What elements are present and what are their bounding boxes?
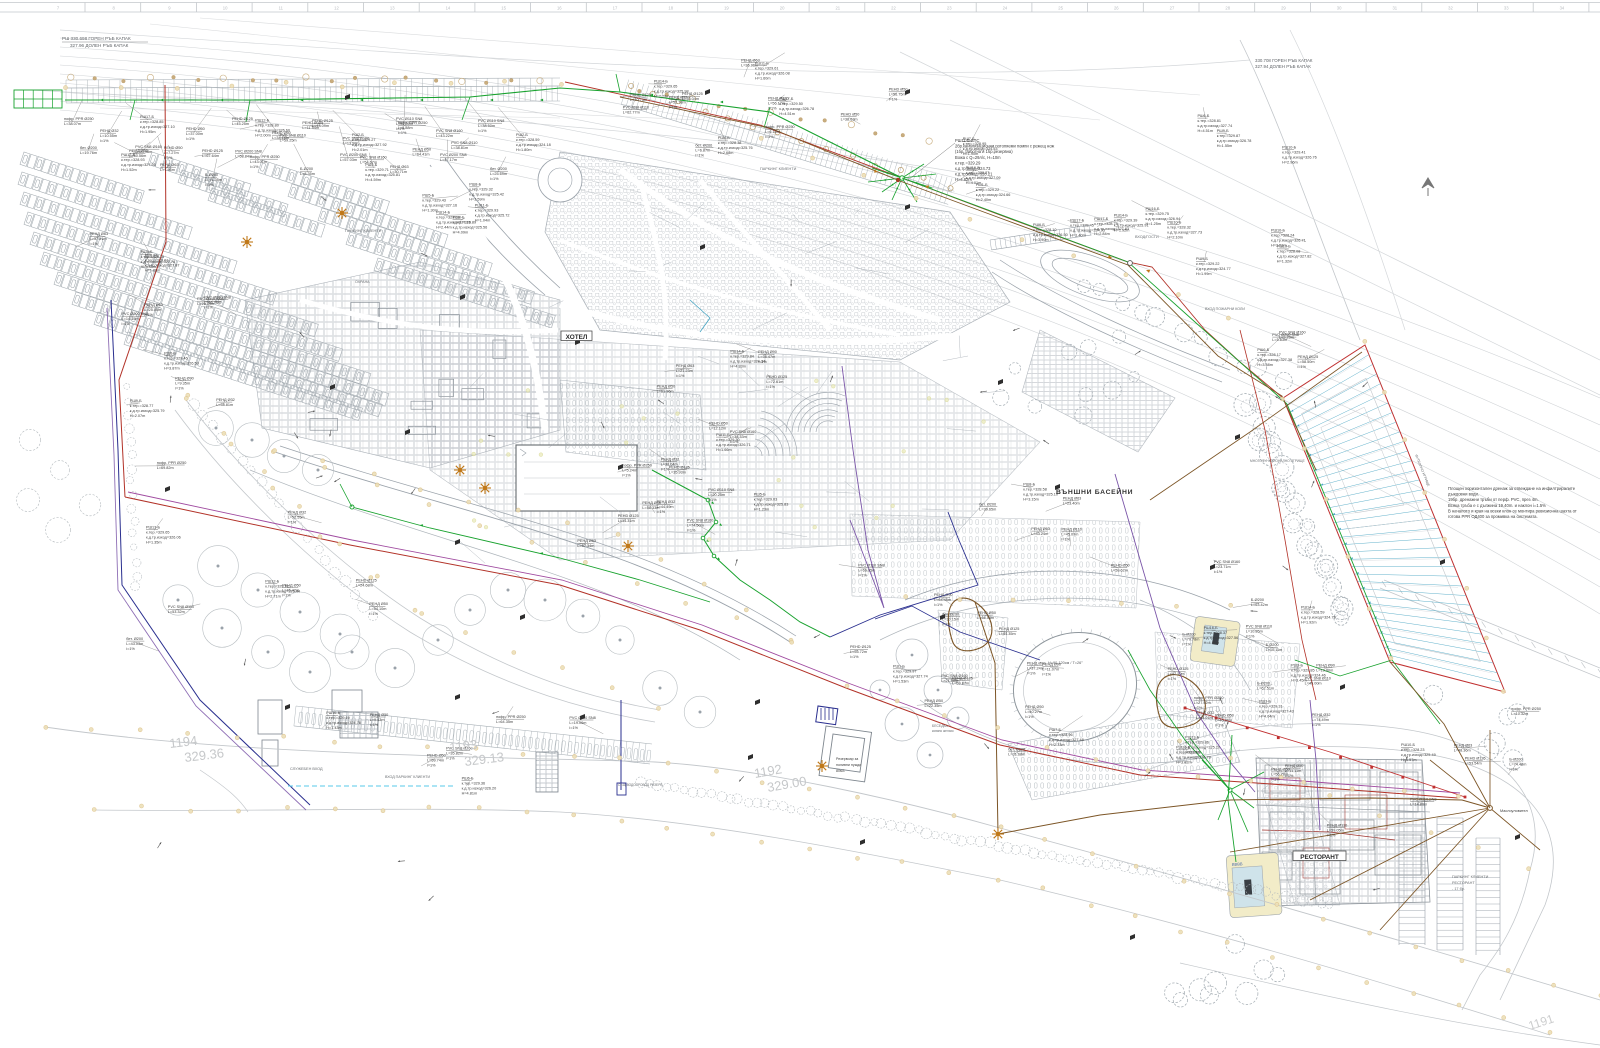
svg-text:к.д.тр.изход=325.81: к.д.тр.изход=325.81 — [365, 173, 400, 177]
svg-text:к.д.тр.изход=324.78: к.д.тр.изход=324.78 — [326, 721, 361, 725]
svg-text:Н=4.33m: Н=4.33m — [730, 365, 746, 369]
svg-text:к.тер.=328.08: к.тер.=328.08 — [1277, 250, 1301, 254]
svg-text:к.тер.=328.89: к.тер.=328.89 — [453, 220, 477, 224]
svg-text:PVC Ø110 SN8: PVC Ø110 SN8 — [478, 119, 504, 123]
svg-text:i=1%: i=1% — [676, 374, 685, 378]
svg-text:L=21.23m: L=21.23m — [676, 369, 693, 373]
svg-text:Н=2.29m: Н=2.29m — [654, 94, 670, 98]
svg-text:L=38.63m: L=38.63m — [841, 118, 858, 122]
svg-text:ковано желязо: ковано желязо — [932, 729, 954, 733]
svg-text:Площен хоризонтален дренаж за: Площен хоризонтален дренаж за отвеждане … — [1448, 486, 1576, 491]
svg-text:L=63.42m: L=63.42m — [1251, 603, 1268, 607]
svg-text:L=19.80m: L=19.80m — [1316, 668, 1333, 672]
svg-text:РШ12-Б: РШ12-Б — [121, 153, 136, 157]
svg-text:к.тер.=329.65: к.тер.=329.65 — [146, 531, 170, 535]
svg-text:РШ7-Б: РШ7-Б — [1049, 728, 1061, 732]
svg-text:к.д.тр.изход=325.79: к.д.тр.изход=325.79 — [130, 409, 165, 413]
svg-text:РЕНД Ø63: РЕНД Ø63 — [577, 539, 596, 543]
svg-text:L=74.49m: L=74.49m — [1312, 718, 1329, 722]
svg-text:РЕНД Ø110: РЕНД Ø110 — [1327, 823, 1347, 827]
svg-text:327.96 ДОЛЕН РЪБ КАПАК: 327.96 ДОЛЕН РЪБ КАПАК — [70, 43, 129, 48]
svg-text:PVC Ø200 SN8: PVC Ø200 SN8 — [235, 149, 262, 153]
svg-text:РШ 330.698 ГОРЕН РЪБ КАПАК: РШ 330.698 ГОРЕН РЪБ КАПАК — [62, 36, 131, 41]
svg-text:L=10.32m: L=10.32m — [1511, 712, 1528, 716]
svg-text:к.тер.=329.31: к.тер.=329.31 — [1259, 704, 1283, 708]
svg-text:Н=3.26m: Н=3.26m — [1185, 751, 1201, 755]
svg-text:PEHD Ø125: PEHD Ø125 — [630, 93, 651, 97]
svg-text:РШ6-Б: РШ6-Б — [1033, 223, 1045, 227]
svg-text:к.д.тр.изход=326.71: к.д.тр.изход=326.71 — [1271, 238, 1306, 242]
svg-text:РЕСТОРАНТ: РЕСТОРАНТ — [1300, 854, 1339, 861]
svg-text:L=19.06m: L=19.06m — [569, 721, 586, 725]
svg-text:РЕНД Ø63: РЕНД Ø63 — [90, 232, 109, 236]
svg-text:Н=1.90m: Н=1.90m — [963, 152, 979, 156]
svg-text:L=58.84m: L=58.84m — [235, 154, 252, 158]
svg-text:PEHD Ø125: PEHD Ø125 — [202, 149, 223, 153]
svg-text:к.тер.=329.22: к.тер.=329.22 — [1196, 262, 1220, 266]
svg-text:i=1%: i=1% — [427, 764, 436, 768]
svg-text:к.тер.=329.71: к.тер.=329.71 — [365, 168, 389, 172]
svg-text:к.д.тр.изход=327.56: к.д.тр.изход=327.56 — [1204, 636, 1239, 640]
svg-text:Н=2.68m: Н=2.68m — [718, 151, 734, 155]
svg-text:L=43.22m: L=43.22m — [436, 134, 453, 138]
svg-text:Н=1.53m: Н=1.53m — [893, 680, 909, 684]
svg-text:бет. Ø200: бет. Ø200 — [979, 502, 996, 506]
svg-text:32: 32 — [1448, 6, 1453, 11]
svg-text:i=1%: i=1% — [934, 603, 943, 607]
svg-text:СЛУЖЕБЕН ВХОД: СЛУЖЕБЕН ВХОД — [290, 767, 323, 771]
svg-text:РШ5-Б: РШ5-Б — [422, 194, 434, 198]
svg-text:L=70.73m: L=70.73m — [630, 98, 647, 102]
svg-text:7: 7 — [57, 6, 60, 11]
svg-text:к.тер.=328.59: к.тер.=328.59 — [516, 138, 540, 142]
svg-text:L=14.31m: L=14.31m — [618, 519, 635, 523]
svg-text:L=53.54m: L=53.54m — [1465, 762, 1482, 766]
svg-text:РШ12-Б: РШ12-Б — [255, 119, 270, 123]
svg-text:к.тер.=329.75: к.тер.=329.75 — [1146, 212, 1170, 216]
svg-text:к.тер.=328.59: к.тер.=328.59 — [1301, 611, 1325, 615]
svg-text:к.тер.=329.46: к.тер.=329.46 — [164, 357, 188, 361]
svg-text:РЕНД Ø63: РЕНД Ø63 — [1031, 527, 1050, 531]
svg-text:i=1%: i=1% — [569, 726, 578, 730]
svg-text:L=10.55m: L=10.55m — [100, 134, 117, 138]
svg-text:РШ9-Б: РШ9-Б — [130, 399, 142, 403]
svg-text:Н=3.58m: Н=3.58m — [1257, 363, 1273, 367]
svg-text:i=1%: i=1% — [1285, 774, 1294, 778]
svg-text:Б-Ø200: Б-Ø200 — [205, 173, 218, 177]
svg-text:Н=2.10m: Н=2.10m — [1167, 236, 1183, 240]
svg-text:i=1%: i=1% — [942, 623, 951, 627]
svg-text:к.тер.=329.43: к.тер.=329.43 — [422, 199, 446, 203]
svg-text:к.д.тр.изход=325.91: к.д.тр.изход=325.91 — [1114, 224, 1149, 228]
svg-text:17: 17 — [613, 6, 618, 11]
svg-text:i=1%: i=1% — [1168, 677, 1177, 681]
svg-text:Н=1.80m: Н=1.80m — [516, 148, 532, 152]
svg-text:к.тер.=329.85: к.тер.=329.85 — [1291, 669, 1315, 673]
svg-text:РШ10-Б: РШ10-Б — [966, 166, 981, 170]
svg-text:L=45.42m: L=45.42m — [282, 588, 299, 592]
svg-text:Н=1.43m: Н=1.43m — [326, 726, 342, 730]
svg-text:Всяка тръба е с дължина 19.40m: Всяка тръба е с дължина 19.40m. и наклон… — [1448, 503, 1546, 508]
svg-text:L=58.50m: L=58.50m — [1298, 360, 1315, 364]
svg-text:i=1%: i=1% — [288, 521, 297, 525]
svg-text:пофр. PPR Ø250: пофр. PPR Ø250 — [1511, 707, 1541, 711]
svg-text:РЕНД Ø125: РЕНД Ø125 — [999, 627, 1020, 631]
svg-text:L=72.61m: L=72.61m — [766, 380, 783, 384]
svg-text:РШ10-Б: РШ10-Б — [1277, 245, 1292, 249]
svg-text:к.д.тр.изход=327.10: к.д.тр.изход=327.10 — [140, 125, 175, 129]
svg-text:L=11.54m: L=11.54m — [302, 126, 319, 130]
svg-text:к.тер.=328.80: к.тер.=328.80 — [255, 124, 279, 128]
svg-text:L=55.72m: L=55.72m — [850, 650, 867, 654]
svg-text:к.д.тр.изход=326.60: к.д.тр.изход=326.60 — [255, 129, 290, 133]
svg-text:РЕНД Ø32: РЕНД Ø32 — [1312, 713, 1331, 717]
svg-text:PVC Ø110 SN8: PVC Ø110 SN8 — [569, 716, 595, 720]
svg-text:L=45.25m: L=45.25m — [232, 122, 249, 126]
svg-text:бет. Ø200: бет. Ø200 — [126, 637, 143, 641]
svg-text:ВЪНШНИ БАСЕЙНИ: ВЪНШНИ БАСЕЙНИ — [1056, 487, 1133, 496]
svg-text:Н=2.71m: Н=2.71m — [265, 594, 281, 598]
svg-text:PEHD Ø50: PEHD Ø50 — [841, 113, 860, 117]
svg-text:к.тер.=329.86: к.тер.=329.86 — [1185, 741, 1209, 745]
svg-text:РЕНД Ø90: РЕНД Ø90 — [934, 593, 953, 597]
svg-text:РЕНД Ø125: РЕНД Ø125 — [1298, 355, 1319, 359]
svg-text:L=59.25m: L=59.25m — [280, 139, 297, 143]
svg-text:L=37.00m: L=37.00m — [186, 132, 203, 136]
svg-text:L=62.77m: L=62.77m — [623, 110, 640, 114]
svg-text:к.д.тр.изход=327.82: к.д.тр.изход=327.82 — [1277, 255, 1312, 259]
svg-text:PVC SN8 Ø160: PVC SN8 Ø160 — [687, 518, 714, 522]
svg-text:L=59.87m: L=59.87m — [952, 681, 969, 685]
svg-text:i=1%: i=1% — [765, 135, 774, 139]
svg-text:L=64.35m: L=64.35m — [496, 720, 513, 724]
svg-text:к.тер.=328.77: к.тер.=328.77 — [130, 404, 154, 408]
svg-text:- 17 бр.: - 17 бр. — [1452, 887, 1465, 891]
svg-text:PEHD Ø50: PEHD Ø50 — [977, 611, 996, 615]
svg-text:i=1%: i=1% — [250, 165, 259, 169]
svg-text:18: 18 — [668, 6, 673, 11]
svg-text:пофр. PPR Ø250: пофр. PPR Ø250 — [398, 121, 428, 125]
svg-text:к.тер.=329.87: к.тер.=329.87 — [1217, 134, 1241, 138]
svg-text:L=74.48m: L=74.48m — [1509, 763, 1526, 767]
svg-text:L=44.49m: L=44.49m — [657, 505, 674, 509]
svg-text:к.д.тр.изход=327.74: к.д.тр.изход=327.74 — [1198, 124, 1233, 128]
svg-text:РЕНД Ø90: РЕНД Ø90 — [175, 376, 194, 380]
svg-text:PVC SN8 Ø110: PVC SN8 Ø110 — [1246, 625, 1272, 629]
svg-text:пофр. PPR Ø250: пофр. PPR Ø250 — [765, 125, 795, 129]
svg-text:РЕНД Ø50: РЕНД Ø50 — [413, 148, 432, 152]
svg-text:Н=2.96m: Н=2.96m — [1282, 160, 1298, 164]
svg-text:i=1%: i=1% — [657, 510, 666, 514]
svg-text:к.тер.=329.93: к.тер.=329.93 — [475, 208, 499, 212]
svg-text:к.д.тр.изход=326.78: к.д.тр.изход=326.78 — [1217, 139, 1252, 143]
svg-text:к.д.тр.изход=327.09: к.д.тр.изход=327.09 — [966, 176, 1001, 180]
svg-text:L=6.87m: L=6.87m — [695, 148, 710, 152]
svg-text:к.тер.=328.17: к.тер.=328.17 — [1257, 353, 1281, 357]
svg-text:к.тер.=329.61: к.тер.=329.61 — [755, 66, 779, 70]
svg-text:РЕНД Ø63: РЕНД Ø63 — [144, 303, 163, 307]
svg-text:i=1%: i=1% — [1327, 833, 1336, 837]
svg-text:PVC SN8 Ø110: PVC SN8 Ø110 — [280, 134, 306, 138]
svg-text:Б-Ø200: Б-Ø200 — [1182, 633, 1195, 637]
svg-text:к.тер.=329.03: к.тер.=329.03 — [754, 498, 778, 502]
svg-text:РШ10-Б: РШ10-Б — [1271, 228, 1286, 232]
svg-text:РЕНД Ø50: РЕНД Ø50 — [369, 602, 388, 606]
svg-text:РШ6-Б: РШ6-Б — [1198, 114, 1210, 118]
svg-text:i=1%: i=1% — [369, 612, 378, 616]
svg-text:Н=4.59m: Н=4.59m — [365, 178, 381, 182]
svg-text:РШ13-Б: РШ13-Б — [1185, 736, 1200, 740]
svg-text:к.д.тр.изход=325.83: к.д.тр.изход=325.83 — [754, 503, 789, 507]
svg-text:Н=4.04m: Н=4.04m — [1259, 714, 1275, 718]
svg-text:i=1%: i=1% — [205, 183, 214, 187]
svg-text:L=9.43m: L=9.43m — [370, 718, 385, 722]
svg-text:ПАРКИНГ КЛИЕНТИ: ПАРКИНГ КЛИЕНТИ — [345, 229, 382, 233]
svg-text:бет. Ø200: бет. Ø200 — [80, 146, 97, 150]
svg-text:бет. Ø200: бет. Ø200 — [1008, 748, 1025, 752]
svg-text:ПАРКИНГ КЛИЕНТИ: ПАРКИНГ КЛИЕНТИ — [1452, 875, 1489, 879]
svg-text:к.тер.=329.01: к.тер.=329.01 — [145, 259, 169, 263]
svg-text:Н=3.82m: Н=3.82m — [1176, 761, 1192, 765]
svg-text:к.д.тр.изход=325.42: к.д.тр.изход=325.42 — [469, 193, 504, 197]
svg-text:L=11.11m: L=11.11m — [1285, 769, 1301, 773]
svg-text:РШ10-Б: РШ10-Б — [1401, 743, 1416, 747]
svg-text:PVC SN8 Ø110: PVC SN8 Ø110 — [168, 605, 194, 609]
svg-text:Б-Ø200: Б-Ø200 — [300, 167, 313, 171]
svg-text:i=1%: i=1% — [687, 528, 696, 532]
svg-text:РШ9-Б: РШ9-Б — [1196, 257, 1208, 261]
svg-text:РЕСТОРАНТ: РЕСТОРАНТ — [1452, 881, 1475, 885]
svg-text:к.тер.=329.84: к.тер.=329.84 — [730, 355, 754, 359]
svg-text:РШ11-Б: РШ11-Б — [475, 203, 489, 207]
svg-text:20: 20 — [780, 6, 785, 11]
svg-text:1191: 1191 — [1527, 1011, 1556, 1032]
svg-text:26: 26 — [1114, 6, 1119, 11]
svg-text:PEHD Ø50: PEHD Ø50 — [186, 127, 205, 131]
svg-text:PEHD Ø50: PEHD Ø50 — [709, 422, 728, 426]
svg-text:PVC SN8 Ø160: PVC SN8 Ø160 — [360, 156, 387, 160]
svg-text:РШ7-Б: РШ7-Б — [963, 137, 975, 141]
svg-text:к.д.тр.изход=325.56: к.д.тр.изход=325.56 — [453, 225, 488, 229]
svg-text:L=8.35m: L=8.35m — [300, 172, 315, 176]
svg-text:L=7.27m: L=7.27m — [164, 151, 179, 155]
svg-text:к.тер.=328.95: к.тер.=328.95 — [963, 142, 987, 146]
svg-text:L=35.93m: L=35.93m — [669, 471, 686, 475]
svg-text:i=1%: i=1% — [204, 306, 213, 310]
svg-text:80м3: 80м3 — [836, 769, 844, 773]
svg-text:i=1%: i=1% — [186, 137, 195, 141]
svg-text:i=1%: i=1% — [446, 757, 455, 761]
svg-text:к.д.тр.изход=327.87: к.д.тр.изход=327.87 — [145, 264, 180, 268]
svg-text:24: 24 — [1003, 6, 1008, 11]
svg-text:к.д.тр.изход=325.10: к.д.тр.изход=325.10 — [1023, 493, 1058, 497]
svg-text:РШ16-Б: РШ16-Б — [1146, 207, 1161, 211]
svg-text:РШ14-Б: РШ14-Б — [1301, 606, 1316, 610]
svg-text:к.тер.=328.32: к.тер.=328.32 — [1167, 226, 1191, 230]
svg-text:РЕНД Ø90: РЕНД Ø90 — [1316, 663, 1335, 667]
svg-text:PEHD Ø50: PEHD Ø50 — [164, 146, 183, 150]
svg-text:PEHD Ø125: PEHD Ø125 — [1168, 667, 1189, 671]
svg-text:к.д.тр.изход=326.59: к.д.тр.изход=326.59 — [164, 362, 199, 366]
svg-text:РШ3-Б: РШ3-Б — [1291, 664, 1303, 668]
svg-text:15: 15 — [501, 6, 506, 11]
svg-text:PVC Ø110 SN8: PVC Ø110 SN8 — [708, 488, 734, 492]
svg-text:PVC Ø110 SN8: PVC Ø110 SN8 — [858, 564, 884, 568]
svg-text:к.тер.=328.27: к.тер.=328.27 — [966, 171, 990, 175]
svg-text:L=49.00m: L=49.00m — [1305, 682, 1322, 686]
svg-text:i=1%: i=1% — [1027, 671, 1036, 675]
svg-text:Н=4.51m: Н=4.51m — [1198, 129, 1214, 133]
svg-text:РШ1-Б: РШ1-Б — [893, 665, 905, 669]
svg-text:330.708 ГОРЕН РЪБ КАПАК: 330.708 ГОРЕН РЪБ КАПАК — [1255, 58, 1313, 63]
svg-text:L=59.74m: L=59.74m — [427, 759, 444, 763]
svg-text:L=58.62m: L=58.62m — [1111, 568, 1128, 572]
svg-text:РЕНД Ø50: РЕНД Ø50 — [282, 583, 301, 587]
svg-text:Н=1.60m: Н=1.60m — [755, 76, 771, 80]
svg-text:к.д.тр.изход=325.20: к.д.тр.изход=325.20 — [1185, 746, 1220, 750]
svg-text:i=1%: i=1% — [1298, 365, 1307, 369]
svg-text:L=13.98m: L=13.98m — [343, 142, 360, 146]
svg-text:i=1%: i=1% — [766, 385, 775, 389]
svg-text:30: 30 — [1337, 6, 1342, 11]
svg-text:РШ1-Б: РШ1-Б — [976, 183, 988, 187]
svg-text:L=43.01m: L=43.01m — [250, 160, 267, 164]
svg-text:14: 14 — [446, 6, 451, 11]
svg-text:L=12.12m: L=12.12m — [709, 427, 726, 431]
svg-text:i=1%: i=1% — [1061, 538, 1070, 542]
svg-text:i=1%: i=1% — [758, 360, 767, 364]
svg-text:к.д.тр.изход=325.49: к.д.тр.изход=325.49 — [1401, 753, 1436, 757]
svg-text:к.тер.=329.30: к.тер.=329.30 — [716, 438, 740, 442]
svg-text:РШ4-Б: РШ4-Б — [718, 136, 730, 140]
svg-text:Н=1.04m: Н=1.04m — [475, 218, 491, 222]
svg-text:Н=2.44m: Н=2.44m — [436, 225, 452, 229]
svg-text:327.94 ДОЛЕН РЪБ КАПАК: 327.94 ДОЛЕН РЪБ КАПАК — [1255, 64, 1311, 69]
svg-text:Н=3.87m: Н=3.87m — [164, 367, 180, 371]
svg-text:i=1%: i=1% — [1312, 723, 1321, 727]
svg-text:РШ16-Б: РШ16-Б — [326, 711, 341, 715]
svg-text:L=19.76m: L=19.76m — [80, 151, 97, 155]
svg-text:L=25.00m: L=25.00m — [144, 308, 161, 312]
svg-text:РШ6-Б: РШ6-Б — [164, 352, 176, 356]
svg-text:РШ2-Б: РШ2-Б — [516, 133, 528, 137]
svg-text:к.д.тр.изход=324.18: к.д.тр.изход=324.18 — [516, 143, 551, 147]
svg-text:L=38.04m: L=38.04m — [661, 463, 678, 467]
svg-text:PEHD Ø125: PEHD Ø125 — [232, 117, 253, 121]
svg-text:L=6.16m: L=6.16m — [765, 130, 780, 134]
svg-text:Н=4.96m: Н=4.96m — [1204, 641, 1220, 645]
svg-text:PVC Ø200 SN8: PVC Ø200 SN8 — [440, 153, 467, 157]
svg-text:к.тер.=328.85: к.тер.=328.85 — [140, 120, 164, 124]
svg-text:L=23.71m: L=23.71m — [1214, 565, 1231, 569]
svg-text:к.д.тр.изход=326.78: к.д.тр.изход=326.78 — [779, 107, 814, 111]
svg-text:Н=1.35m: Н=1.35m — [146, 541, 162, 545]
svg-text:31: 31 — [1392, 6, 1397, 11]
svg-text:PEHD Ø50: PEHD Ø50 — [889, 88, 908, 92]
svg-text:РЕНД Ø32: РЕНД Ø32 — [100, 129, 119, 133]
svg-text:L=42.10m: L=42.10m — [1168, 672, 1185, 676]
svg-text:21: 21 — [835, 6, 840, 11]
svg-text:i=1%: i=1% — [100, 139, 109, 143]
svg-text:к.д.тр.изход=326.08: к.д.тр.изход=326.08 — [755, 71, 790, 75]
svg-text:L=64.45m: L=64.45m — [934, 598, 951, 602]
svg-text:25: 25 — [1058, 6, 1063, 11]
svg-text:Маслоуловител: Маслоуловител — [1500, 809, 1528, 813]
svg-text:Н=4.51m: Н=4.51m — [779, 112, 795, 116]
svg-text:РЕНД Ø63: РЕНД Ø63 — [1063, 497, 1082, 501]
svg-text:РЕНД Ø50: РЕНД Ø50 — [370, 713, 389, 717]
svg-text:к.д.тр.изход=327.93: к.д.тр.изход=327.93 — [121, 163, 156, 167]
svg-text:28: 28 — [1225, 6, 1230, 11]
svg-text:Н=2.00m: Н=2.00m — [255, 134, 271, 138]
svg-text:PVC Ø110 SN8: PVC Ø110 SN8 — [1410, 798, 1436, 802]
svg-text:L=36.96m: L=36.96m — [741, 63, 758, 67]
svg-text:Н=1.23m: Н=1.23m — [754, 508, 770, 512]
svg-text:L=10.11m: L=10.11m — [1266, 648, 1283, 652]
svg-text:L=25.69m: L=25.69m — [490, 172, 507, 176]
svg-text:к.д.тр.изход=324.53: к.д.тр.изход=324.53 — [963, 147, 998, 151]
svg-text:бет. Ø200: бет. Ø200 — [490, 167, 507, 171]
svg-text:РЕНД Ø50: РЕНД Ø50 — [925, 699, 944, 703]
svg-text:ПАРКИНГ КЛИЕНТИ: ПАРКИНГ КЛИЕНТИ — [760, 167, 797, 171]
svg-text:L=47.17m: L=47.17m — [440, 158, 457, 162]
svg-text:PEHD Ø50: PEHD Ø50 — [1111, 563, 1130, 567]
svg-text:PVC SN8 Ø160: PVC SN8 Ø160 — [436, 129, 463, 133]
svg-text:L=69.82m: L=69.82m — [157, 466, 174, 470]
svg-text:к.тер.=329.29: к.тер.=329.29 — [955, 160, 981, 165]
svg-text:34: 34 — [1560, 6, 1565, 11]
svg-text:РЕНД Ø90: РЕНД Ø90 — [758, 350, 777, 354]
svg-text:L=67.64m: L=67.64m — [202, 154, 219, 158]
svg-text:i=1%: i=1% — [90, 242, 99, 246]
svg-text:i=1%: i=1% — [1025, 715, 1034, 719]
svg-text:дъждовни води.: дъждовни води. — [1448, 492, 1479, 497]
svg-text:i=1%: i=1% — [858, 574, 867, 578]
svg-text:L=53.32m: L=53.32m — [168, 610, 185, 614]
svg-text:к.тер.=328.81: к.тер.=328.81 — [1198, 119, 1222, 123]
svg-text:i=1%: i=1% — [478, 129, 487, 133]
svg-text:к.д.тр.изход=327.16: к.д.тр.изход=327.16 — [422, 204, 457, 208]
svg-text:РШ8-Б: РШ8-Б — [469, 183, 481, 187]
svg-text:к.д.тр.изход=324.77: к.д.тр.изход=324.77 — [1196, 267, 1231, 271]
svg-text:PEHD Ø125: PEHD Ø125 — [850, 645, 871, 649]
svg-text:PVC SN8 Ø160: PVC SN8 Ø160 — [135, 145, 162, 149]
svg-text:i=1%: i=1% — [622, 474, 631, 478]
svg-text:РШ3-Б: РШ3-Б — [1259, 699, 1271, 703]
svg-text:i=1%: i=1% — [1246, 635, 1255, 639]
svg-text:МНОГОФУНКЦИОНАЛНО ИГРИЩЕ: МНОГОФУНКЦИОНАЛНО ИГРИЩЕ — [1250, 459, 1305, 463]
svg-text:L=5.24m: L=5.24m — [622, 469, 637, 473]
svg-text:i=1%: i=1% — [490, 177, 499, 181]
svg-text:L=46.86m: L=46.86m — [1215, 719, 1232, 723]
svg-text:к.д.тр.изход=325.72: к.д.тр.изход=325.72 — [475, 213, 510, 217]
svg-text:к.тер.=328.45: к.тер.=328.45 — [1070, 223, 1094, 227]
svg-text:i=1%: i=1% — [850, 655, 859, 659]
svg-text:PEHD Ø50: PEHD Ø50 — [427, 754, 446, 758]
svg-text:i=1%: i=1% — [175, 386, 184, 390]
svg-text:РШ12-Б: РШ12-Б — [265, 579, 280, 583]
svg-text:РШ9-Б: РШ9-Б — [1217, 129, 1229, 133]
svg-text:к.тер.=328.38: к.тер.=328.38 — [718, 141, 742, 145]
svg-text:РШ8-Б: РШ8-Б — [453, 215, 465, 219]
svg-text:бет. Ø200: бет. Ø200 — [942, 613, 959, 617]
svg-text:PEHD Ø125: PEHD Ø125 — [1465, 757, 1486, 761]
svg-text:L=20.25m: L=20.25m — [708, 493, 725, 497]
svg-text:к.д.тр.изход=327.74: к.д.тр.изход=327.74 — [893, 675, 928, 679]
svg-text:PVC SN8 Ø110: PVC SN8 Ø110 — [451, 141, 477, 145]
svg-text:РШ17-Б: РШ17-Б — [1094, 217, 1109, 221]
svg-text:РЕНД Ø32: РЕНД Ø32 — [657, 500, 676, 504]
